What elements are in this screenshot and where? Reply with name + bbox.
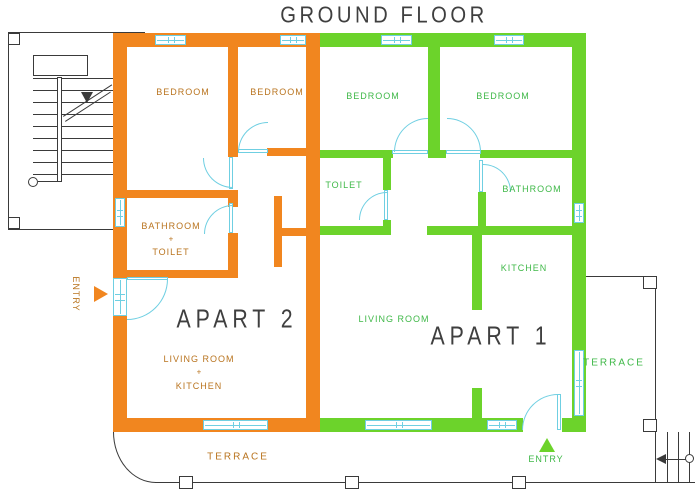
- terrace-post: [643, 419, 657, 432]
- stair-tread: [38, 181, 58, 182]
- apart1-living-label: LIVING ROOM: [358, 314, 429, 324]
- apart1-toilet-bottom-wall: [320, 226, 391, 235]
- window: [487, 420, 517, 430]
- page-title: GROUND FLOOR: [280, 2, 488, 29]
- apart2-name-label: APART 2: [177, 304, 298, 335]
- apart1-bedrooms-bottom-wall-c: [480, 150, 572, 158]
- apart2-living-label-line1: LIVING ROOM: [163, 354, 234, 364]
- terrace-post: [179, 476, 193, 489]
- apart1-bedroom1-door-swing: [394, 118, 428, 152]
- terrace-corner-arc: [113, 432, 156, 483]
- stair-tread: [33, 150, 113, 151]
- stair-tread: [33, 174, 113, 175]
- apart2-bedroom1-door-swing: [203, 158, 233, 188]
- apart2-bedroom1-bottom-wall: [127, 190, 228, 198]
- apart1-bedroom-divider: [428, 47, 440, 150]
- apart2-wall-left-upper: [113, 33, 127, 278]
- apart1-toilet-door-swing: [359, 192, 387, 220]
- stair-bottom-line: [8, 229, 114, 230]
- apart1-bathroom-left-wall: [478, 192, 486, 234]
- stair-tread: [33, 138, 113, 139]
- window: [381, 35, 412, 45]
- window: [574, 203, 584, 223]
- apart1-kitchen-label: KITCHEN: [501, 263, 548, 273]
- terrace-right-line: [655, 276, 656, 483]
- apart1-bathroom-label: BATHROOM: [502, 184, 561, 194]
- apart2-bathroom-label-line1: BATHROOM: [141, 221, 200, 231]
- apart2-hall-partition-v: [274, 196, 282, 267]
- stair-post-bottom: [8, 217, 20, 229]
- apart1-hall-bottom-wall: [427, 226, 572, 235]
- terrace-post: [643, 276, 657, 289]
- apart2-entry-arrow-icon: [94, 286, 108, 302]
- apart2-bedroom-divider-upper: [228, 47, 238, 157]
- apart2-bedroom2-label: BEDROOM: [250, 87, 304, 97]
- apart2-bathroom-label-plus: +: [169, 235, 174, 244]
- apart1-bedroom2-label: BEDROOM: [476, 91, 530, 101]
- apart1-bedrooms-bottom-wall-b: [428, 150, 446, 158]
- steps-start-circle: [685, 454, 694, 463]
- apart2-hall-partition-h: [282, 228, 306, 236]
- apart2-bedroom2-bottom-wall: [267, 148, 306, 156]
- stair-post-top: [8, 33, 20, 45]
- apart2-entry-label: ENTRY: [71, 276, 81, 311]
- apart2-bathroom-label-line2: TOILET: [152, 247, 189, 257]
- apart2-bedroom2-door-swing: [238, 122, 268, 152]
- stair-tread: [33, 162, 113, 163]
- apart1-entry-door-swing: [522, 394, 558, 430]
- apart1-wall-top: [320, 33, 586, 47]
- apart1-kitchen-divider-lower: [472, 388, 482, 418]
- terrace-post: [345, 476, 359, 489]
- stair-tread: [33, 102, 113, 103]
- terrace-post: [512, 476, 526, 489]
- apart2-bedroom1-label: BEDROOM: [156, 87, 210, 97]
- apart2-wall-left-lower: [113, 316, 127, 432]
- window: [155, 35, 186, 45]
- stair-tread: [33, 126, 113, 127]
- steps-line: [678, 432, 679, 483]
- window: [494, 35, 524, 45]
- window: [280, 35, 306, 45]
- apart2-bathroom-door-swing: [204, 205, 233, 234]
- stair-rail: [57, 77, 62, 182]
- terrace-bottom-label: TERRACE: [207, 452, 269, 463]
- apart1-toilet-right-wall-upper: [383, 150, 391, 190]
- floor-plan: GROUND FLOOR: [0, 0, 700, 500]
- apart1-kitchen-divider-upper: [472, 235, 482, 310]
- stair-arrow-icon: [81, 92, 93, 103]
- apart2-entry-door-frame: [113, 278, 127, 316]
- apart1-bedroom2-door-swing: [447, 118, 481, 152]
- apart1-name-label: APART 1: [431, 321, 552, 352]
- terrace-bottom-line: [155, 482, 695, 483]
- stair-start-circle: [28, 177, 38, 187]
- apart1-bedroom1-label: BEDROOM: [346, 91, 400, 101]
- stair-left-line: [8, 32, 9, 230]
- steps-line: [667, 432, 668, 483]
- apart1-entry-label: ENTRY: [528, 454, 563, 464]
- apart1-toilet-label: TOILET: [325, 180, 362, 190]
- stair-tread: [33, 78, 113, 79]
- steps-arrow-icon: [656, 454, 666, 464]
- window: [203, 420, 268, 430]
- apart2-living-label-line2: KITCHEN: [176, 381, 223, 391]
- window: [115, 198, 125, 227]
- party-wall: [306, 33, 320, 432]
- window: [365, 420, 432, 430]
- apart2-living-label-plus: +: [197, 368, 202, 377]
- terrace-right-label: TERRACE: [583, 358, 645, 369]
- stair-landing: [33, 55, 88, 76]
- apart1-entry-arrow-icon: [539, 438, 555, 452]
- apart2-entry-door-swing: [127, 279, 168, 320]
